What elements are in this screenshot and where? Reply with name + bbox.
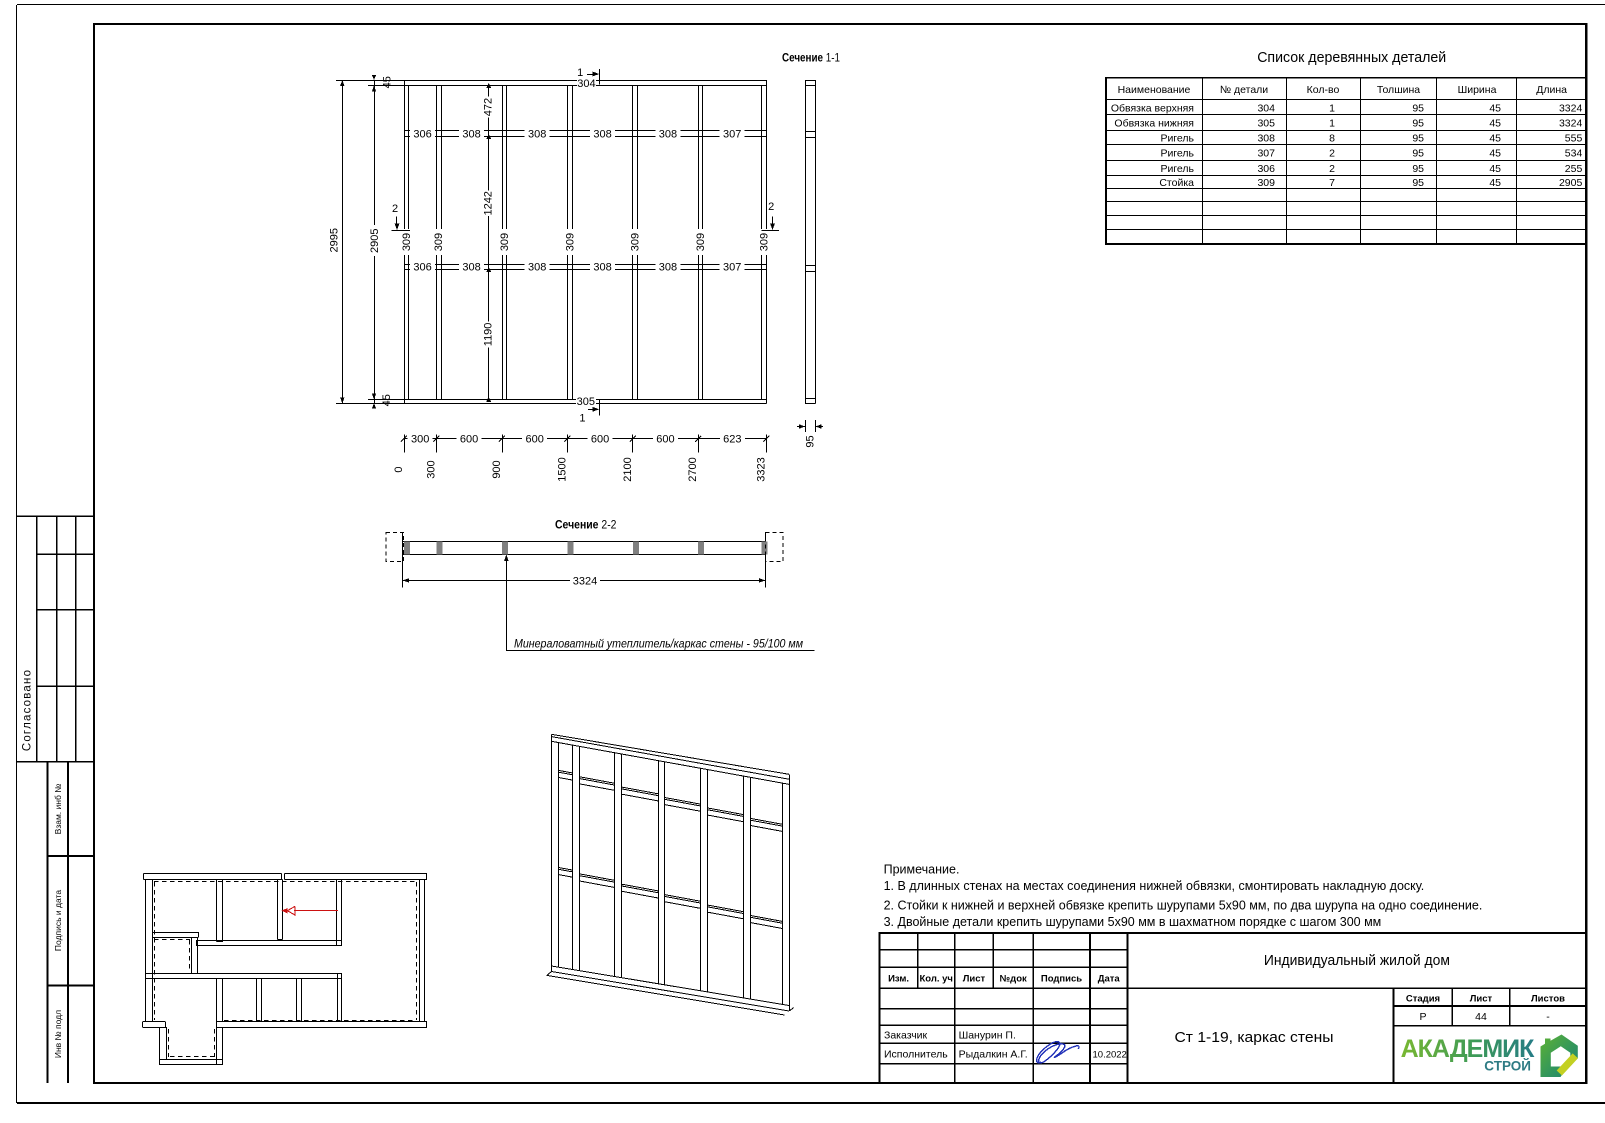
- svg-text:Стадия: Стадия: [1406, 994, 1440, 1005]
- svg-text:304: 304: [577, 78, 595, 90]
- svg-text:-: -: [1546, 1011, 1550, 1023]
- svg-text:2: 2: [1329, 148, 1335, 160]
- svg-text:3323: 3323: [755, 457, 767, 481]
- svg-text:600: 600: [591, 434, 609, 446]
- svg-text:Обвязка верхняя: Обвязка верхняя: [1111, 102, 1194, 114]
- svg-text:95: 95: [1412, 148, 1424, 160]
- svg-text:8: 8: [1329, 133, 1335, 145]
- svg-text:3324: 3324: [573, 575, 597, 587]
- svg-text:45: 45: [1489, 102, 1501, 114]
- svg-text:Наименование: Наименование: [1118, 84, 1191, 96]
- svg-text:1190: 1190: [482, 323, 494, 347]
- svg-text:95: 95: [1412, 177, 1424, 189]
- svg-text:3324: 3324: [1559, 102, 1583, 114]
- svg-text:306: 306: [413, 262, 431, 274]
- svg-text:Ширина: Ширина: [1458, 84, 1497, 96]
- svg-text:600: 600: [526, 434, 544, 446]
- svg-text:307: 307: [723, 129, 741, 141]
- svg-text:95: 95: [1412, 133, 1424, 145]
- svg-text:307: 307: [1257, 148, 1275, 160]
- svg-text:95: 95: [1412, 118, 1424, 130]
- svg-text:255: 255: [1565, 163, 1583, 175]
- svg-text:2. Стойки к нижней и верхней о: 2. Стойки к нижней и верхней обвязке кре…: [884, 899, 1483, 913]
- svg-text:Инв № подл: Инв № подл: [53, 1010, 63, 1058]
- svg-text:Примечание.: Примечание.: [884, 863, 960, 877]
- svg-text:2: 2: [1329, 163, 1335, 175]
- svg-text:Ригель: Ригель: [1160, 163, 1194, 175]
- svg-text:Подпись: Подпись: [1041, 974, 1082, 985]
- svg-text:45: 45: [1489, 148, 1501, 160]
- svg-text:309: 309: [433, 233, 445, 251]
- svg-text:10.2022: 10.2022: [1093, 1050, 1127, 1061]
- svg-text:45: 45: [381, 76, 393, 88]
- svg-text:308: 308: [593, 262, 611, 274]
- svg-text:Рыдалкин А.Г.: Рыдалкин А.Г.: [959, 1049, 1028, 1061]
- svg-text:Список деревянных деталей: Список деревянных деталей: [1257, 49, 1446, 66]
- svg-text:1242: 1242: [482, 191, 494, 215]
- svg-text:Обвязка нижняя: Обвязка нижняя: [1114, 118, 1194, 130]
- svg-text:Сечение 1-1: Сечение 1-1: [782, 53, 840, 65]
- svg-text:Стойка: Стойка: [1159, 177, 1194, 189]
- svg-text:309: 309: [695, 233, 707, 251]
- svg-text:308: 308: [528, 129, 546, 141]
- svg-text:Ригель: Ригель: [1160, 148, 1194, 160]
- svg-text:308: 308: [528, 262, 546, 274]
- svg-text:Лист: Лист: [1470, 994, 1493, 1005]
- svg-text:308: 308: [1257, 133, 1275, 145]
- svg-text:2: 2: [392, 203, 398, 215]
- svg-text:44: 44: [1475, 1011, 1487, 1023]
- svg-text:1: 1: [1329, 102, 1335, 114]
- svg-text:308: 308: [659, 262, 677, 274]
- svg-text:45: 45: [1489, 118, 1501, 130]
- svg-text:306: 306: [413, 129, 431, 141]
- svg-text:Ст 1-19, каркас стены: Ст 1-19, каркас стены: [1175, 1029, 1334, 1046]
- svg-text:305: 305: [1257, 118, 1275, 130]
- svg-text:45: 45: [1489, 163, 1501, 175]
- svg-text:СТРОЙ: СТРОЙ: [1484, 1059, 1531, 1074]
- svg-text:Подпись и дата: Подпись и дата: [53, 890, 63, 951]
- svg-text:1. В длинных стенах на местах: 1. В длинных стенах на местах соединения…: [884, 879, 1425, 893]
- svg-text:45: 45: [1489, 177, 1501, 189]
- svg-text:555: 555: [1565, 133, 1583, 145]
- svg-text:2100: 2100: [622, 457, 634, 481]
- svg-text:2700: 2700: [687, 457, 699, 481]
- svg-text:623: 623: [723, 434, 741, 446]
- svg-text:7: 7: [1329, 177, 1335, 189]
- svg-text:Толшина: Толшина: [1377, 84, 1420, 96]
- svg-text:95: 95: [1412, 163, 1424, 175]
- svg-text:Согласовано: Согласовано: [22, 669, 34, 751]
- svg-text:Заказчик: Заказчик: [884, 1029, 928, 1041]
- svg-text:Листов: Листов: [1531, 994, 1565, 1005]
- svg-text:№док: №док: [1000, 974, 1027, 985]
- svg-text:305: 305: [577, 396, 595, 408]
- svg-text:95: 95: [1412, 102, 1424, 114]
- svg-text:Минераловатный утеплитель/карк: Минераловатный утеплитель/каркас стены -…: [514, 637, 803, 651]
- svg-text:2995: 2995: [328, 228, 340, 252]
- svg-text:309: 309: [1257, 177, 1275, 189]
- svg-text:309: 309: [401, 233, 413, 251]
- svg-text:2: 2: [768, 201, 774, 213]
- svg-text:Дата: Дата: [1098, 974, 1121, 985]
- svg-text:308: 308: [659, 129, 677, 141]
- svg-text:306: 306: [1257, 163, 1275, 175]
- svg-text:300: 300: [425, 460, 437, 478]
- svg-text:Исполнитель: Исполнитель: [884, 1049, 948, 1061]
- svg-text:95: 95: [804, 435, 816, 447]
- svg-text:300: 300: [411, 434, 429, 446]
- svg-text:2905: 2905: [1559, 177, 1583, 189]
- svg-text:2905: 2905: [369, 228, 381, 252]
- svg-text:472: 472: [482, 98, 494, 116]
- svg-text:309: 309: [499, 233, 511, 251]
- svg-text:Кол-во: Кол-во: [1307, 84, 1340, 96]
- svg-text:309: 309: [564, 233, 576, 251]
- svg-text:Сечение 2-2: Сечение 2-2: [555, 520, 617, 532]
- svg-text:309: 309: [630, 233, 642, 251]
- svg-text:Индивидуальный жилой дом: Индивидуальный жилой дом: [1264, 952, 1450, 969]
- svg-text:Длина: Длина: [1536, 84, 1567, 96]
- svg-text:308: 308: [462, 262, 480, 274]
- svg-text:600: 600: [656, 434, 674, 446]
- svg-text:308: 308: [593, 129, 611, 141]
- svg-text:900: 900: [491, 460, 503, 478]
- svg-text:Кол. уч: Кол. уч: [919, 974, 952, 985]
- svg-text:Р: Р: [1419, 1011, 1426, 1023]
- svg-text:307: 307: [723, 262, 741, 274]
- svg-text:1: 1: [579, 413, 585, 425]
- svg-text:3324: 3324: [1559, 118, 1583, 130]
- svg-text:3. Двойные детали крепить шуру: 3. Двойные детали крепить шурупами 5х90 …: [884, 915, 1382, 929]
- svg-text:1: 1: [1329, 118, 1335, 130]
- svg-text:45: 45: [1489, 133, 1501, 145]
- svg-text:600: 600: [460, 434, 478, 446]
- svg-text:Шанурин П.: Шанурин П.: [959, 1029, 1016, 1041]
- svg-text:Лист: Лист: [963, 974, 986, 985]
- svg-text:Изм.: Изм.: [888, 974, 909, 985]
- svg-text:45: 45: [381, 394, 393, 406]
- svg-text:304: 304: [1257, 102, 1275, 114]
- svg-text:309: 309: [758, 233, 770, 251]
- svg-text:Ригель: Ригель: [1160, 133, 1194, 145]
- svg-text:0: 0: [393, 466, 405, 472]
- svg-text:№ детали: № детали: [1220, 84, 1268, 96]
- svg-text:534: 534: [1565, 148, 1583, 160]
- svg-text:Взам. инб №: Взам. инб №: [53, 784, 63, 835]
- svg-text:1500: 1500: [557, 457, 569, 481]
- svg-text:308: 308: [462, 129, 480, 141]
